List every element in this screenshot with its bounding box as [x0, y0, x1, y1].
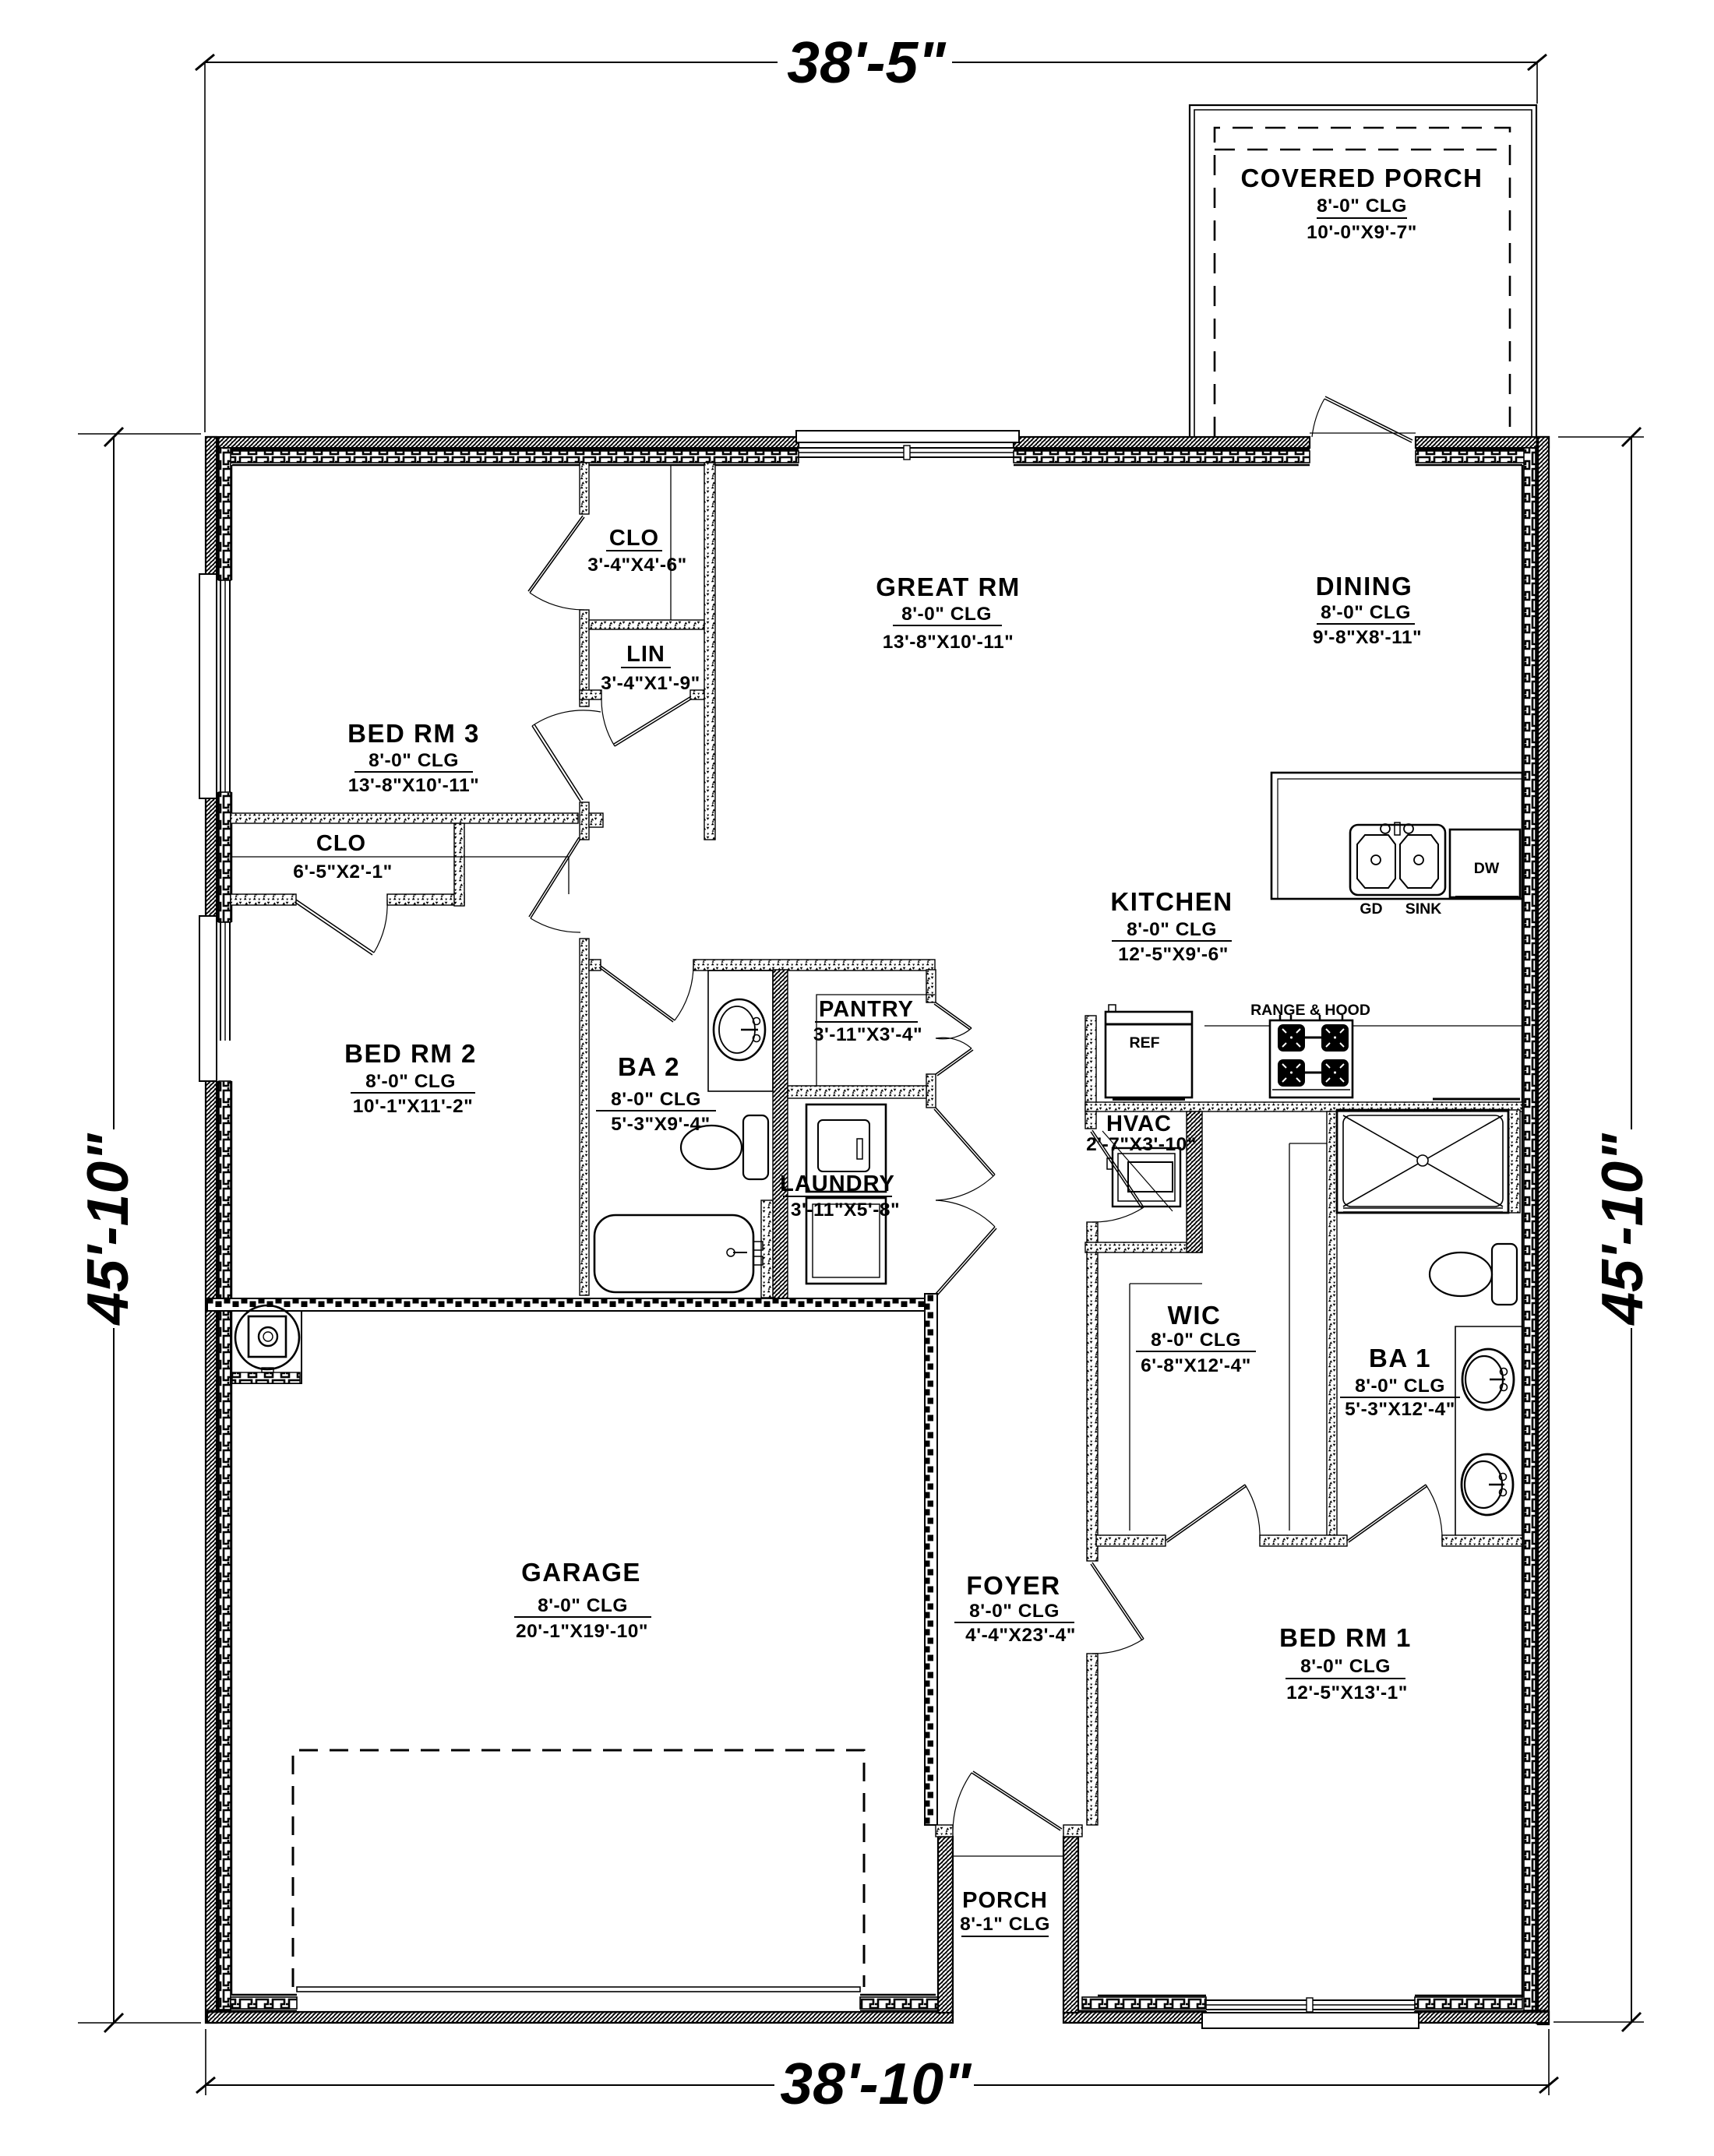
svg-text:20'-1"X19'-10": 20'-1"X19'-10" [516, 1621, 648, 1642]
svg-text:3'-11"X5'-8": 3'-11"X5'-8" [791, 1200, 900, 1221]
svg-text:10'-1"X11'-2": 10'-1"X11'-2" [353, 1096, 473, 1117]
svg-text:8'-0" CLG: 8'-0" CLG [538, 1595, 628, 1616]
svg-text:8'-0" CLG: 8'-0" CLG [1321, 602, 1411, 623]
svg-text:45'-10": 45'-10" [75, 1133, 140, 1326]
svg-text:WIC: WIC [1168, 1301, 1222, 1330]
svg-text:13'-8"X10'-11": 13'-8"X10'-11" [883, 632, 1014, 653]
svg-text:6'-8"X12'-4": 6'-8"X12'-4" [1141, 1355, 1251, 1376]
svg-text:BED RM 3: BED RM 3 [347, 719, 480, 748]
svg-text:45'-10": 45'-10" [1589, 1133, 1655, 1326]
svg-text:CLO: CLO [316, 831, 366, 856]
svg-text:8'-0" CLG: 8'-0" CLG [1127, 919, 1217, 940]
svg-text:DINING: DINING [1316, 572, 1413, 601]
svg-text:8'-1" CLG: 8'-1" CLG [960, 1914, 1050, 1935]
svg-text:3'-4"X4'-6": 3'-4"X4'-6" [587, 555, 687, 576]
svg-text:5'-3"X12'-4": 5'-3"X12'-4" [1345, 1399, 1455, 1420]
svg-text:8'-0" CLG: 8'-0" CLG [969, 1601, 1060, 1622]
svg-text:CLO: CLO [609, 526, 659, 551]
svg-text:4'-4"X23'-4": 4'-4"X23'-4" [965, 1625, 1076, 1646]
svg-text:8'-0" CLG: 8'-0" CLG [1317, 196, 1407, 217]
svg-text:13'-8"X10'-11": 13'-8"X10'-11" [348, 775, 480, 796]
svg-text:BA 1: BA 1 [1369, 1344, 1431, 1372]
svg-text:10'-0"X9'-7": 10'-0"X9'-7" [1307, 222, 1417, 243]
svg-text:8'-0" CLG: 8'-0" CLG [611, 1089, 701, 1110]
svg-text:9'-8"X8'-11": 9'-8"X8'-11" [1313, 627, 1422, 648]
svg-text:HVAC: HVAC [1106, 1111, 1172, 1136]
svg-text:BED RM 1: BED RM 1 [1279, 1623, 1412, 1652]
svg-text:12'-5"X13'-1": 12'-5"X13'-1" [1286, 1682, 1408, 1703]
svg-text:8'-0" CLG: 8'-0" CLG [1151, 1330, 1241, 1351]
svg-text:3'-4"X1'-9": 3'-4"X1'-9" [601, 673, 700, 694]
svg-text:8'-0" CLG: 8'-0" CLG [1355, 1376, 1445, 1397]
svg-text:GREAT RM: GREAT RM [876, 572, 1021, 601]
svg-text:COVERED PORCH: COVERED PORCH [1240, 164, 1483, 192]
svg-text:BED RM 2: BED RM 2 [344, 1039, 477, 1068]
svg-text:GARAGE: GARAGE [521, 1558, 641, 1587]
svg-text:8'-0" CLG: 8'-0" CLG [1300, 1656, 1391, 1677]
svg-text:REF: REF [1130, 1034, 1160, 1052]
svg-text:FOYER: FOYER [966, 1571, 1060, 1600]
svg-text:8'-0" CLG: 8'-0" CLG [369, 750, 459, 771]
svg-text:BA 2: BA 2 [618, 1052, 680, 1081]
svg-text:PANTRY: PANTRY [819, 997, 914, 1022]
svg-text:2'-7"X3'-10": 2'-7"X3'-10" [1086, 1134, 1197, 1155]
svg-text:LIN: LIN [626, 642, 665, 667]
svg-text:8'-0" CLG: 8'-0" CLG [365, 1071, 456, 1092]
svg-text:5'-3"X9'-4": 5'-3"X9'-4" [611, 1114, 711, 1135]
svg-text:DW: DW [1474, 860, 1500, 877]
svg-text:GD: GD [1360, 900, 1382, 918]
svg-text:SINK: SINK [1405, 900, 1442, 918]
svg-text:6'-5"X2'-1": 6'-5"X2'-1" [293, 861, 393, 882]
svg-text:LAUNDRY: LAUNDRY [780, 1171, 895, 1196]
svg-text:38'-5": 38'-5" [787, 30, 947, 95]
svg-text:12'-5"X9'-6": 12'-5"X9'-6" [1118, 944, 1229, 965]
svg-text:8'-0" CLG: 8'-0" CLG [901, 604, 992, 625]
svg-text:38'-10": 38'-10" [780, 2051, 972, 2116]
svg-text:KITCHEN: KITCHEN [1110, 887, 1233, 916]
svg-text:PORCH: PORCH [962, 1888, 1048, 1913]
svg-text:RANGE & HOOD: RANGE & HOOD [1250, 1002, 1370, 1019]
svg-text:3'-11"X3'-4": 3'-11"X3'-4" [813, 1024, 922, 1045]
